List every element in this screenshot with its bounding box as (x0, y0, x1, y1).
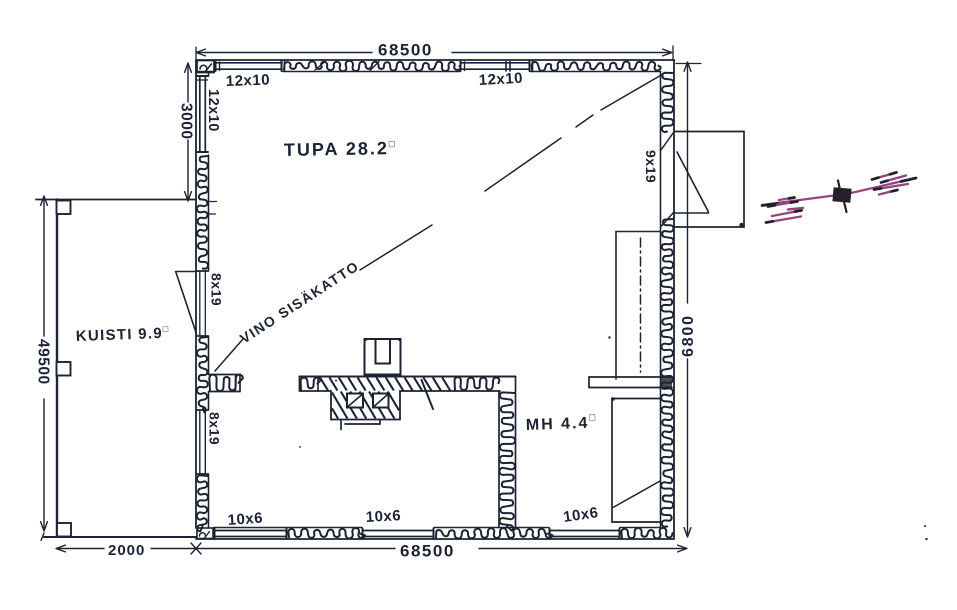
svg-text:MH 4.4□: MH 4.4□ (525, 413, 597, 434)
svg-text:49500: 49500 (35, 339, 52, 385)
svg-text:12x10: 12x10 (478, 70, 523, 89)
svg-text:KUISTI 9.9□: KUISTI 9.9□ (76, 324, 171, 345)
svg-text:9x19: 9x19 (643, 150, 659, 183)
svg-text:3000: 3000 (178, 103, 195, 139)
svg-text:TUPA 28.2□: TUPA 28.2□ (284, 138, 397, 160)
svg-text:10x6: 10x6 (227, 510, 263, 529)
svg-text:10x6: 10x6 (562, 504, 599, 526)
svg-text:68500: 68500 (400, 542, 455, 561)
svg-text:12x10: 12x10 (226, 71, 271, 90)
svg-text:12x10: 12x10 (205, 89, 221, 132)
svg-text:VINO SISÄKATTO: VINO SISÄKATTO (237, 258, 362, 347)
svg-text:10x6: 10x6 (365, 507, 401, 526)
svg-text:6800: 6800 (680, 314, 697, 357)
svg-text:68500: 68500 (378, 41, 433, 60)
svg-text:2000: 2000 (108, 542, 145, 559)
svg-text:8x19: 8x19 (207, 412, 223, 445)
svg-text:8x19: 8x19 (209, 273, 225, 306)
